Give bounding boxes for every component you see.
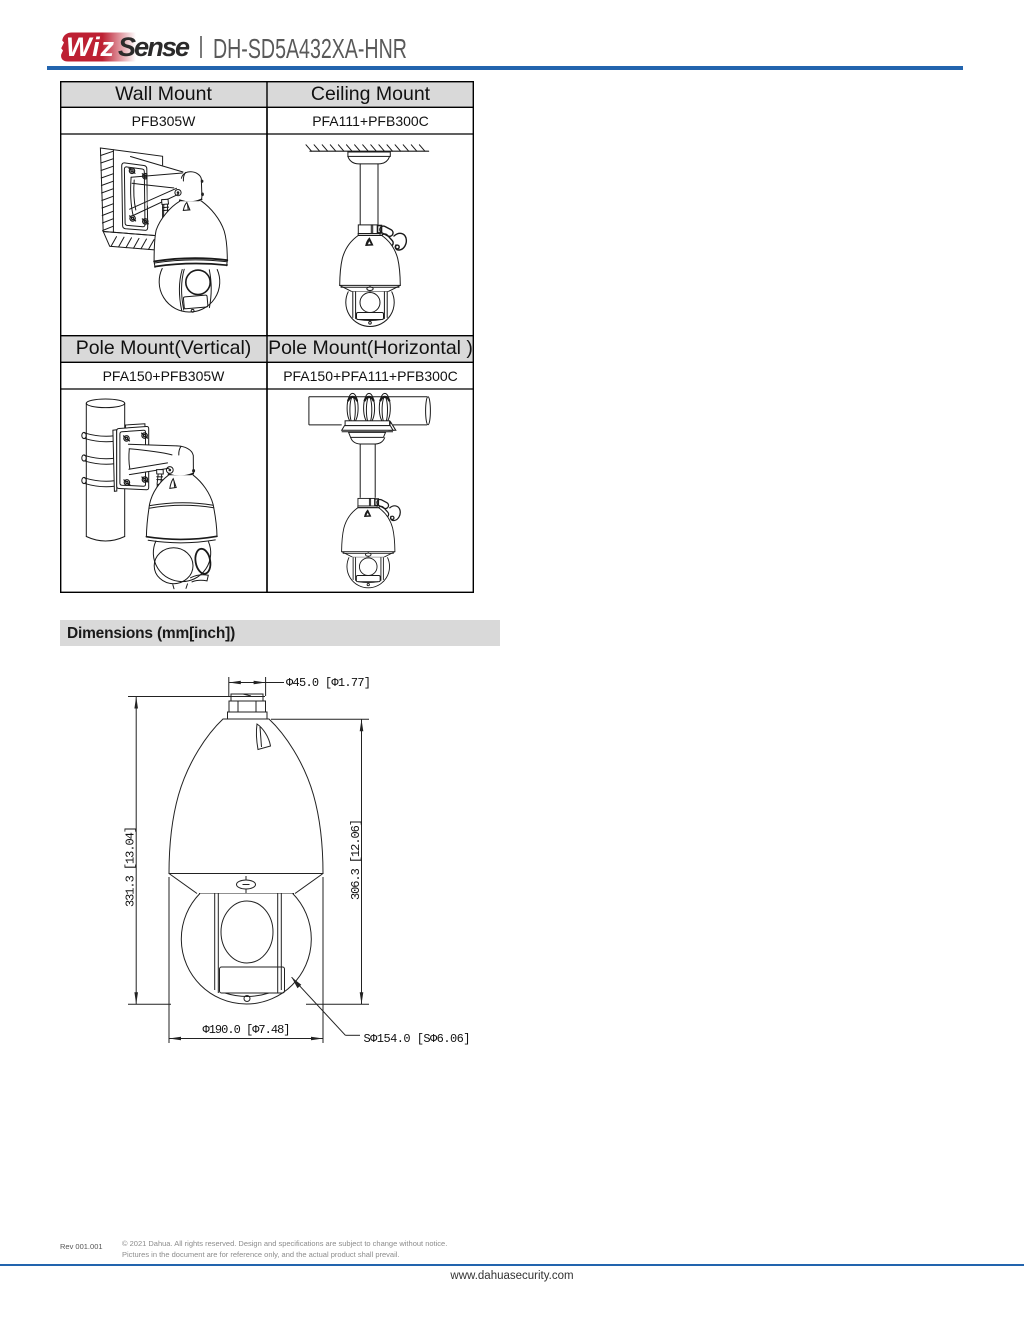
svg-text:331.3 [13.04]: 331.3 [13.04] (124, 826, 138, 907)
svg-text:306.3 [12.06]: 306.3 [12.06] (349, 819, 363, 900)
svg-text:Wiz: Wiz (66, 32, 115, 62)
svg-text:SΦ154.0 [SΦ6.06]: SΦ154.0 [SΦ6.06] (364, 1032, 471, 1046)
svg-text:Φ190.0 [Φ7.48]: Φ190.0 [Φ7.48] (203, 1023, 291, 1037)
svg-text:Φ45.0 [Φ1.77]: Φ45.0 [Φ1.77] (286, 676, 371, 690)
svg-text:Sense: Sense (118, 32, 190, 62)
